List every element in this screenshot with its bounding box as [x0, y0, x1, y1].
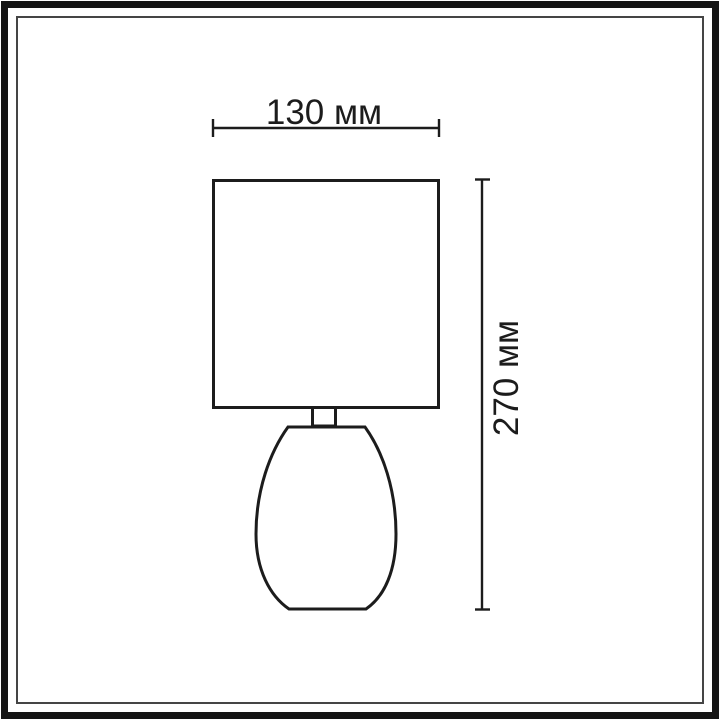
lamp-neck-outline [313, 408, 336, 427]
diagram-canvas: 130 мм 270 мм [0, 0, 720, 720]
height-dimension-label: 270 мм [487, 320, 526, 436]
lamp-dimension-drawing: 130 мм 270 мм [0, 0, 720, 720]
lamp-base-outline [256, 427, 396, 609]
lamp-shade-outline [214, 181, 439, 408]
width-dimension-label: 130 мм [266, 93, 382, 132]
